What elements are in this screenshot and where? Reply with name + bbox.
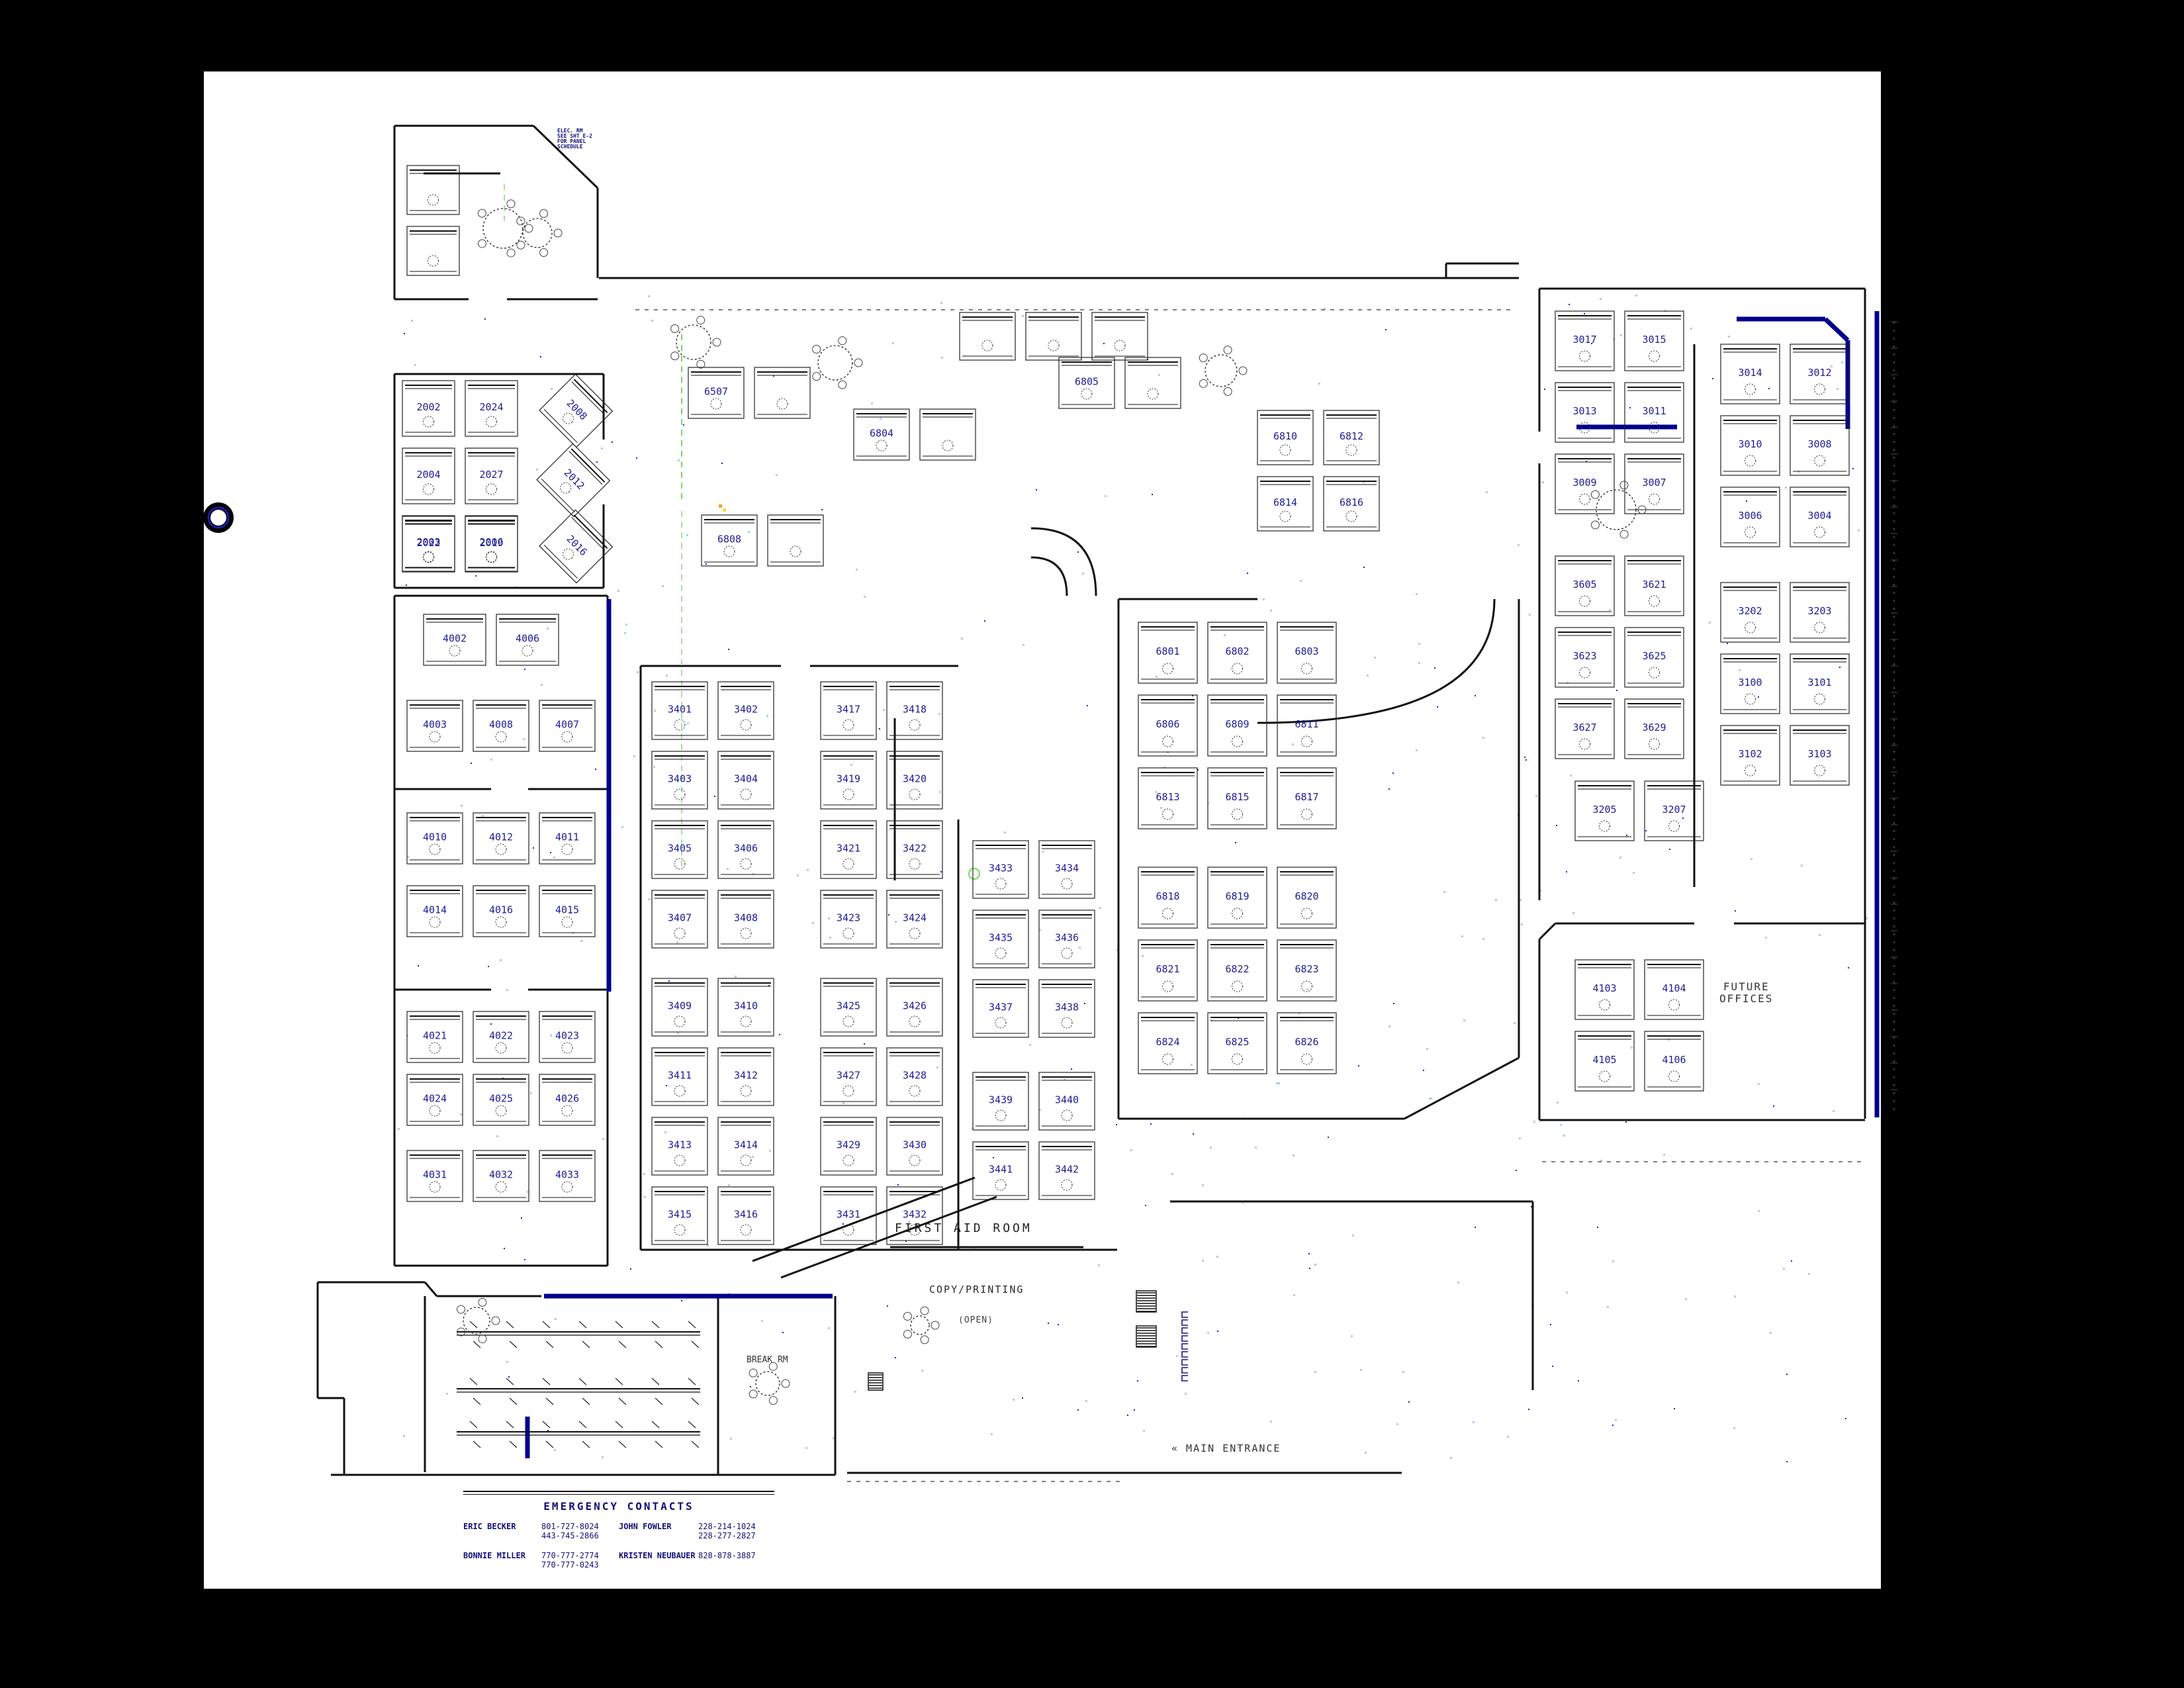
svg-text:4026: 4026 [555, 1093, 579, 1105]
break-room-label: BREAK RM [747, 1356, 788, 1366]
phone: 770-777-0243 [541, 1560, 599, 1570]
svg-text:3421: 3421 [837, 843, 860, 855]
svg-text:3411: 3411 [668, 1070, 692, 1082]
svg-text:4022: 4022 [489, 1030, 513, 1042]
svg-text:3431: 3431 [837, 1209, 860, 1221]
svg-text:2019: 2019 [479, 537, 503, 549]
svg-text:3426: 3426 [903, 1000, 927, 1012]
svg-text:4006: 4006 [516, 633, 539, 645]
svg-text:3427: 3427 [837, 1070, 860, 1082]
svg-text:6812: 6812 [1340, 430, 1363, 442]
svg-text:3425: 3425 [837, 1000, 860, 1012]
svg-text:3406: 3406 [734, 843, 758, 855]
svg-text:3435: 3435 [989, 932, 1013, 944]
svg-text:6801: 6801 [1156, 645, 1179, 657]
svg-text:3006: 3006 [1738, 510, 1762, 522]
contact-name: KRISTEN NEUBAUER [619, 1551, 698, 1570]
svg-text:3100: 3100 [1738, 677, 1762, 688]
legend-title: EMERGENCY CONTACTS [463, 1500, 774, 1513]
svg-text:3007: 3007 [1642, 477, 1666, 489]
svg-text:4031: 4031 [423, 1169, 447, 1181]
svg-text:3410: 3410 [734, 1000, 758, 1012]
svg-text:2004: 2004 [416, 469, 440, 481]
svg-text:3429: 3429 [837, 1139, 860, 1151]
svg-text:6809: 6809 [1225, 718, 1249, 730]
svg-text:3438: 3438 [1055, 1002, 1079, 1013]
svg-text:2002: 2002 [416, 401, 440, 413]
svg-text:3627: 3627 [1572, 722, 1596, 733]
svg-text:6816: 6816 [1340, 496, 1363, 508]
svg-text:4011: 4011 [555, 831, 579, 843]
svg-text:6804: 6804 [870, 428, 893, 440]
svg-text:3441: 3441 [989, 1164, 1013, 1176]
svg-text:4023: 4023 [555, 1030, 579, 1042]
svg-text:6815: 6815 [1225, 791, 1249, 803]
svg-text:3419: 3419 [837, 773, 860, 785]
svg-text:3437: 3437 [989, 1002, 1013, 1013]
svg-text:4024: 4024 [423, 1093, 447, 1105]
svg-text:6820: 6820 [1295, 890, 1318, 902]
svg-text:3423: 3423 [837, 912, 860, 924]
phone: 801-727-8024 [541, 1522, 599, 1531]
contact-name: BONNIE MILLER [463, 1551, 541, 1570]
svg-text:3405: 3405 [668, 843, 692, 855]
svg-text:3004: 3004 [1807, 510, 1831, 522]
svg-text:3011: 3011 [1642, 405, 1666, 417]
svg-text:3101: 3101 [1807, 677, 1831, 688]
svg-text:3409: 3409 [668, 1000, 692, 1012]
svg-text:6811: 6811 [1295, 718, 1318, 730]
plan-viewer: 2002202420042027200320062022201920082012… [0, 0, 2184, 1688]
svg-text:6810: 6810 [1273, 430, 1297, 442]
svg-text:4008: 4008 [489, 719, 513, 731]
svg-text:4007: 4007 [555, 719, 579, 731]
phone: 228-214-1024 [698, 1522, 756, 1531]
svg-text:3404: 3404 [734, 773, 758, 785]
svg-text:3207: 3207 [1662, 804, 1686, 816]
svg-text:6813: 6813 [1156, 791, 1179, 803]
svg-text:4106: 4106 [1662, 1054, 1686, 1066]
svg-text:3403: 3403 [668, 773, 692, 785]
main-entrance-label: « MAIN ENTRANCE [1171, 1443, 1281, 1454]
svg-text:3417: 3417 [837, 704, 860, 716]
svg-text:6823: 6823 [1295, 963, 1318, 975]
svg-text:3008: 3008 [1807, 438, 1831, 450]
svg-text:3420: 3420 [903, 773, 927, 785]
svg-text:3621: 3621 [1642, 579, 1666, 590]
svg-text:6814: 6814 [1273, 496, 1297, 508]
svg-text:3416: 3416 [734, 1209, 758, 1221]
svg-text:3432: 3432 [903, 1209, 927, 1221]
svg-text:3442: 3442 [1055, 1164, 1079, 1176]
svg-text:2024: 2024 [479, 401, 503, 413]
svg-text:3014: 3014 [1738, 367, 1762, 379]
legend-grid: ERIC BECKER 801-727-8024443-745-2866 JOH… [463, 1522, 774, 1570]
svg-text:3202: 3202 [1738, 605, 1762, 617]
svg-text:6803: 6803 [1295, 645, 1318, 657]
svg-text:3430: 3430 [903, 1139, 927, 1151]
svg-text:6808: 6808 [717, 534, 741, 545]
svg-text:4016: 4016 [489, 904, 513, 916]
svg-text:6805: 6805 [1075, 376, 1099, 388]
svg-text:3012: 3012 [1807, 367, 1831, 379]
svg-text:4012: 4012 [489, 831, 513, 843]
svg-text:6825: 6825 [1225, 1036, 1249, 1048]
svg-text:2027: 2027 [479, 469, 503, 481]
svg-text:3407: 3407 [668, 912, 692, 924]
svg-text:3414: 3414 [734, 1139, 758, 1151]
svg-text:3009: 3009 [1572, 477, 1596, 489]
svg-text:4105: 4105 [1592, 1054, 1616, 1066]
phone: 443-745-2866 [541, 1531, 599, 1540]
svg-text:4032: 4032 [489, 1169, 513, 1181]
svg-text:3408: 3408 [734, 912, 758, 924]
first-aid-room-label: FIRST AID ROOM [895, 1222, 1032, 1236]
svg-text:4003: 4003 [423, 719, 447, 731]
phone: 828-878-3887 [698, 1551, 756, 1560]
phone: 770-777-2774 [541, 1551, 599, 1560]
svg-text:3440: 3440 [1055, 1094, 1079, 1106]
contact-phones: 770-777-2774770-777-0243 [541, 1551, 619, 1570]
svg-text:3629: 3629 [1642, 722, 1666, 733]
svg-text:2022: 2022 [416, 537, 440, 549]
svg-text:3418: 3418 [903, 704, 927, 716]
svg-text:4025: 4025 [489, 1093, 513, 1105]
svg-text:3436: 3436 [1055, 932, 1079, 944]
contact-phones: 228-214-1024228-277-2827 [698, 1522, 774, 1540]
drawing-note: ELEC. RM SEE SHT E-2 FOR PANEL SCHEDULE [557, 128, 592, 150]
floor-plan-svg: 2002202420042027200320062022201920082012… [0, 0, 2184, 1688]
svg-text:4033: 4033 [555, 1169, 579, 1181]
svg-text:3203: 3203 [1807, 605, 1831, 617]
svg-text:6824: 6824 [1156, 1036, 1179, 1048]
svg-text:3422: 3422 [903, 843, 927, 855]
svg-text:4010: 4010 [423, 831, 447, 843]
contact-phones: 801-727-8024443-745-2866 [541, 1522, 619, 1540]
svg-text:3413: 3413 [668, 1139, 692, 1151]
contact-name: ERIC BECKER [463, 1522, 541, 1540]
svg-text:3439: 3439 [989, 1094, 1013, 1106]
svg-text:3017: 3017 [1572, 334, 1596, 346]
svg-text:3010: 3010 [1738, 438, 1762, 450]
legend-rule [463, 1491, 774, 1495]
svg-text:6507: 6507 [704, 386, 728, 398]
svg-text:3103: 3103 [1807, 748, 1831, 760]
svg-text:3428: 3428 [903, 1070, 927, 1082]
svg-text:6826: 6826 [1295, 1036, 1318, 1048]
svg-text:4103: 4103 [1592, 982, 1616, 994]
contact-name: JOHN FOWLER [619, 1522, 698, 1540]
svg-text:3424: 3424 [903, 912, 927, 924]
svg-text:4002: 4002 [443, 633, 467, 645]
svg-text:3415: 3415 [668, 1209, 692, 1221]
svg-text:3434: 3434 [1055, 863, 1079, 874]
svg-text:4021: 4021 [423, 1030, 447, 1042]
svg-text:6802: 6802 [1225, 645, 1249, 657]
future-offices-label: FUTURE OFFICES [1719, 981, 1773, 1006]
emergency-contacts-legend: EMERGENCY CONTACTS ERIC BECKER 801-727-8… [463, 1491, 774, 1570]
svg-text:3433: 3433 [989, 863, 1013, 874]
contact-phones: 828-878-3887 [698, 1551, 774, 1570]
svg-text:3401: 3401 [668, 704, 692, 716]
svg-text:3412: 3412 [734, 1070, 758, 1082]
copy-print-label: COPY/PRINTING [929, 1284, 1024, 1295]
svg-text:3013: 3013 [1572, 405, 1596, 417]
svg-text:3102: 3102 [1738, 748, 1762, 760]
svg-text:4015: 4015 [555, 904, 579, 916]
svg-text:6806: 6806 [1156, 718, 1179, 730]
svg-text:4014: 4014 [423, 904, 447, 916]
svg-text:6818: 6818 [1156, 890, 1179, 902]
svg-text:3605: 3605 [1572, 579, 1596, 590]
svg-text:4104: 4104 [1662, 982, 1686, 994]
svg-text:3205: 3205 [1592, 804, 1616, 816]
svg-text:6822: 6822 [1225, 963, 1249, 975]
svg-text:6821: 6821 [1156, 963, 1179, 975]
svg-text:6819: 6819 [1225, 890, 1249, 902]
svg-text:3625: 3625 [1642, 650, 1666, 662]
open-area-label: (OPEN) [958, 1316, 993, 1326]
svg-text:3623: 3623 [1572, 650, 1596, 662]
svg-text:3402: 3402 [734, 704, 758, 716]
svg-text:6817: 6817 [1295, 791, 1318, 803]
svg-text:3015: 3015 [1642, 334, 1666, 346]
phone: 228-277-2827 [698, 1531, 756, 1540]
